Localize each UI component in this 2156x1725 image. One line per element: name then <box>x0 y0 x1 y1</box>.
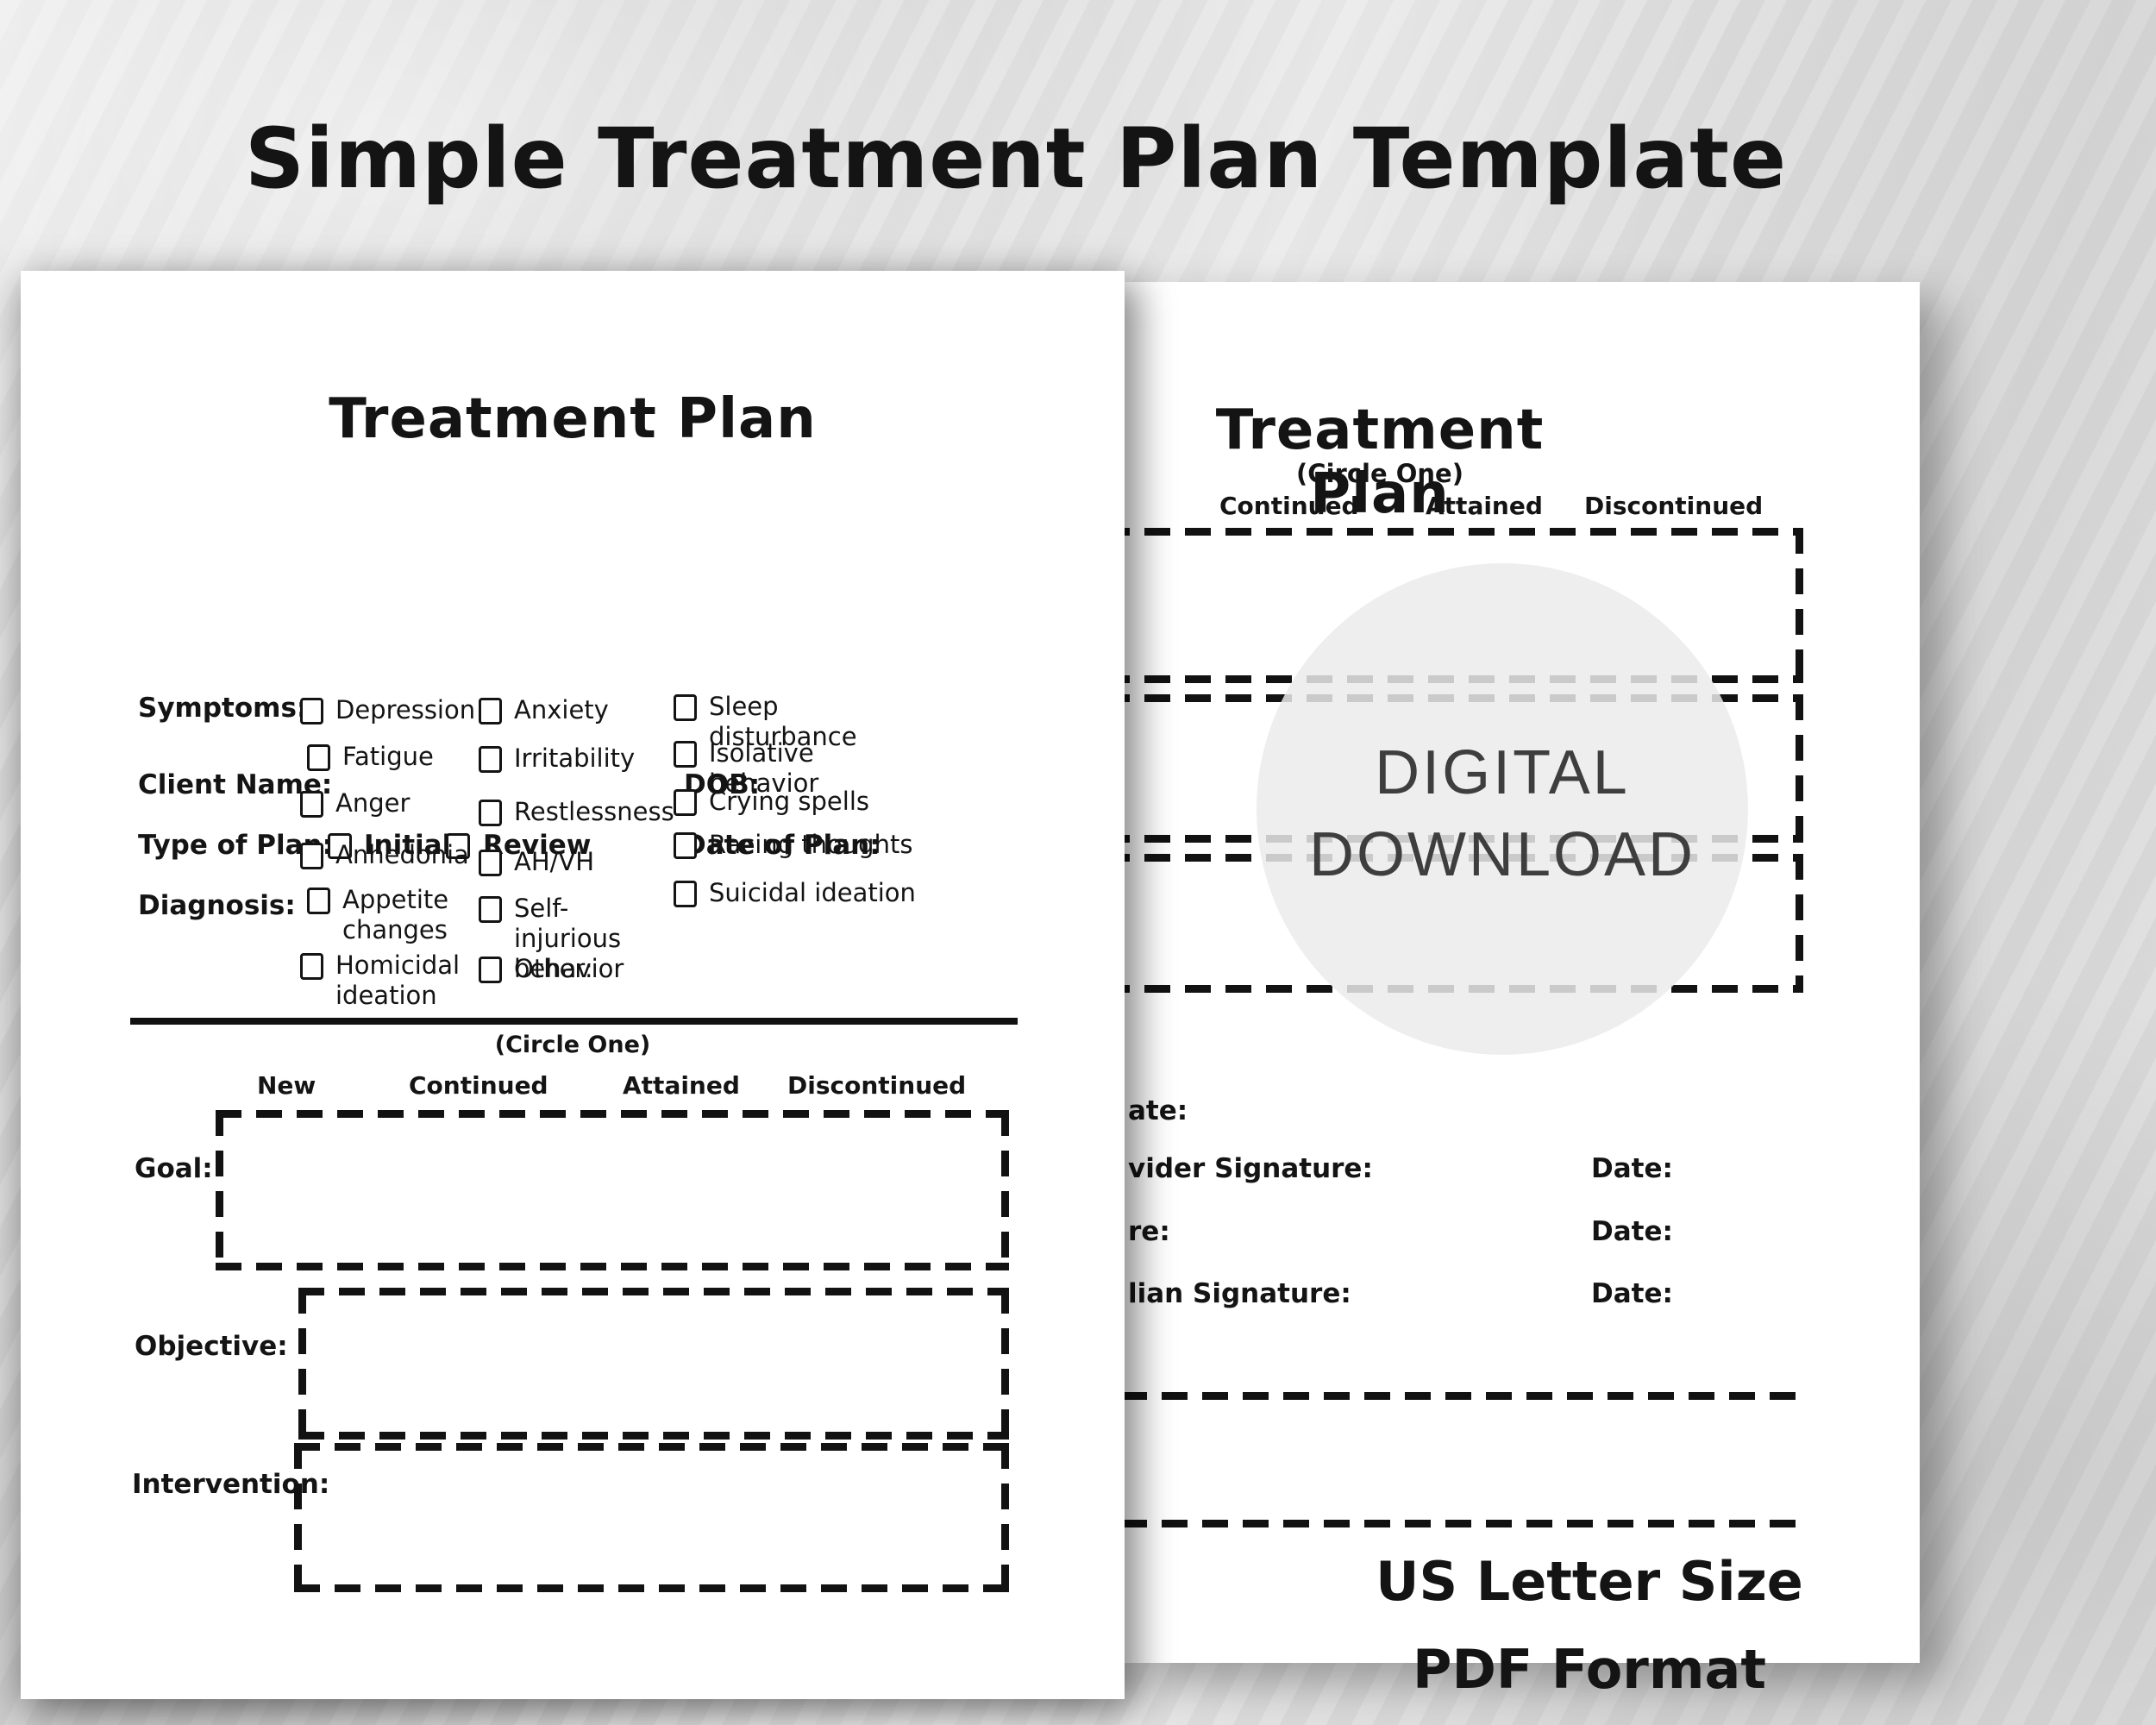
symptom-item: Suicidal ideation <box>674 878 916 908</box>
checkbox-icon <box>307 744 330 771</box>
watermark-line2: DOWNLOAD <box>1257 819 1748 890</box>
front-page-title: Treatment Plan <box>21 387 1125 451</box>
goal-label: Goal: <box>135 1153 213 1184</box>
checkbox-icon <box>479 698 502 724</box>
back-rule-2 <box>1121 1520 1803 1527</box>
back-page: Treatment Plan (Circle One) Continued At… <box>1121 282 1920 1663</box>
back-circle-one-note: (Circle One) <box>1170 459 1589 488</box>
symptom-item: Restlessness <box>479 797 674 827</box>
status-new: New <box>257 1071 316 1100</box>
symptom-item: Anhedonia <box>300 840 469 870</box>
back-status-discontinued: Discontinued <box>1584 492 1763 520</box>
checkbox-icon <box>300 953 323 980</box>
symptom-item: Racing thoughts <box>674 830 912 860</box>
symptoms-label: Symptoms: <box>138 693 307 724</box>
symptom-label: Anxiety <box>514 695 609 725</box>
section-divider <box>130 1018 1018 1025</box>
symptom-item: Appetite changes <box>307 885 436 945</box>
checkbox-icon <box>674 881 697 907</box>
symptom-label: Restlessness <box>514 797 674 827</box>
guardian-date-label: Date: <box>1591 1278 1673 1309</box>
checkbox-icon <box>674 789 697 816</box>
signature-fragment-guardian: lian Signature: <box>1128 1278 1351 1309</box>
signature-fragment-client: re: <box>1128 1216 1170 1247</box>
checkbox-icon <box>300 791 323 818</box>
checkbox-icon <box>307 888 330 914</box>
symptom-label: Fatigue <box>342 742 434 772</box>
checkbox-icon <box>479 800 502 826</box>
checkbox-icon <box>300 843 323 869</box>
checkbox-icon <box>300 698 323 724</box>
objective-label: Objective: <box>135 1331 288 1362</box>
back-status-attained: Attained <box>1426 492 1543 520</box>
symptom-label: Anger <box>335 788 410 819</box>
goal-box <box>216 1110 1009 1270</box>
symptom-item: Anxiety <box>479 695 609 725</box>
status-continued: Continued <box>409 1071 548 1100</box>
symptom-label: Appetite changes <box>342 885 448 945</box>
back-rule-1 <box>1121 1392 1803 1400</box>
symptom-label: Racing thoughts <box>709 830 912 860</box>
back-status-continued: Continued <box>1219 492 1359 520</box>
symptom-label: Depression <box>335 695 475 725</box>
symptom-label: Homicidal ideation <box>335 950 460 1011</box>
checkbox-icon <box>674 832 697 859</box>
symptom-item: Anger <box>300 788 410 819</box>
footer-size-text: US Letter Size <box>1365 1550 1814 1613</box>
checkbox-icon <box>479 850 502 876</box>
signature-fragment-date: ate: <box>1128 1095 1188 1126</box>
checkbox-icon <box>479 746 502 773</box>
symptom-item: Crying spells <box>674 787 869 817</box>
checkbox-icon <box>674 694 697 721</box>
checkbox-icon <box>479 896 502 923</box>
footer-format-text: PDF Format <box>1365 1638 1814 1701</box>
symptom-label: Irritability <box>514 743 635 774</box>
symptom-label: Anhedonia <box>335 840 469 870</box>
signature-fragment-provider: vider Signature: <box>1128 1153 1373 1184</box>
status-discontinued: Discontinued <box>787 1071 966 1100</box>
intervention-box <box>294 1443 1009 1592</box>
objective-box <box>298 1288 1009 1440</box>
symptom-item: Homicidal ideation <box>300 950 434 1011</box>
checkbox-icon <box>479 957 502 983</box>
symptom-label: Other: <box>514 954 593 984</box>
client-date-label: Date: <box>1591 1216 1673 1247</box>
symptom-label: Crying spells <box>709 787 869 817</box>
symptom-item: Other: <box>479 954 593 984</box>
symptom-item: Fatigue <box>307 742 434 772</box>
front-circle-one-note: (Circle One) <box>21 1032 1125 1058</box>
main-title: Simple Treatment Plan Template <box>0 110 2032 207</box>
checkbox-icon <box>674 741 697 768</box>
symptom-label: AH/VH <box>514 847 594 877</box>
watermark-circle <box>1257 563 1748 1055</box>
status-attained: Attained <box>623 1071 740 1100</box>
symptom-item: Irritability <box>479 743 635 774</box>
front-page: Treatment Plan Client Name: DOB: Type of… <box>21 271 1125 1699</box>
provider-date-label: Date: <box>1591 1153 1673 1184</box>
watermark-line1: DIGITAL <box>1257 737 1748 808</box>
symptom-label: Suicidal ideation <box>709 878 916 908</box>
symptom-item: Depression <box>300 695 475 725</box>
diagnosis-label: Diagnosis: <box>138 890 296 921</box>
product-image: Simple Treatment Plan Template Treatment… <box>0 0 2156 1725</box>
symptom-item: AH/VH <box>479 847 594 877</box>
